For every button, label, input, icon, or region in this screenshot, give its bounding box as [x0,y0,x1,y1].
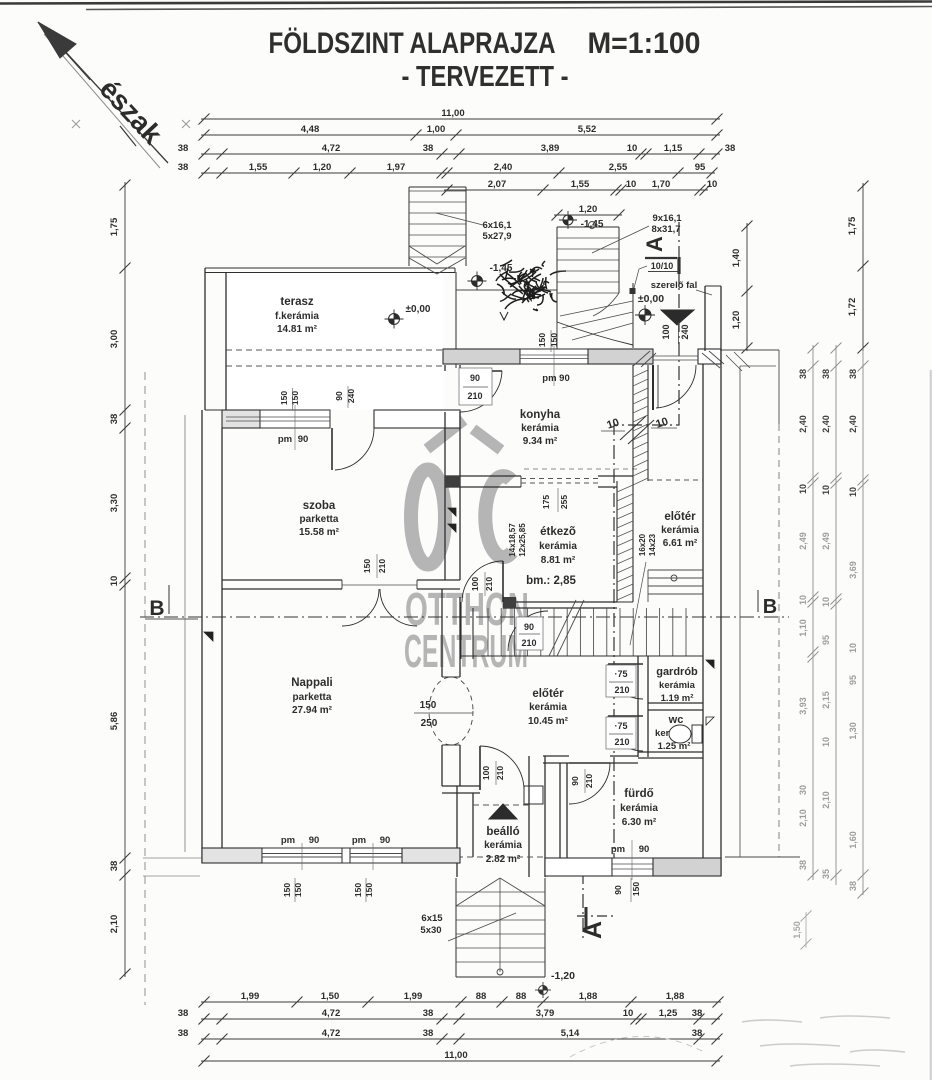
svg-text:A: A [642,236,667,252]
svg-text:parketta: parketta [293,692,332,703]
svg-text:parketta: parketta [300,514,339,525]
svg-text:1,88: 1,88 [666,991,685,1002]
svg-text:6.61 m²: 6.61 m² [663,538,698,549]
svg-text:-1,20: -1,20 [551,970,575,982]
svg-text:150: 150 [279,391,289,405]
svg-text:M=1:100: M=1:100 [588,27,701,60]
svg-text:B: B [763,596,777,618]
svg-text:2,07: 2,07 [488,179,507,190]
svg-text:10: 10 [627,143,638,154]
svg-text:3,93: 3,93 [798,697,808,715]
svg-text:1,97: 1,97 [387,162,406,173]
svg-text:10: 10 [848,487,858,497]
svg-text:11,00: 11,00 [444,1050,467,1061]
svg-text:±0,00: ±0,00 [638,293,664,305]
svg-text:4,72: 4,72 [322,143,341,154]
svg-text:240: 240 [346,389,356,403]
svg-text:210: 210 [467,391,482,401]
svg-text:95: 95 [821,635,831,645]
svg-text:5x30: 5x30 [420,925,441,936]
svg-text:150: 150 [631,882,641,896]
svg-text:10: 10 [821,485,831,495]
svg-text:2,40: 2,40 [848,415,858,433]
svg-text:150: 150 [364,883,374,897]
svg-text:kerámia: kerámia [484,840,522,851]
svg-text:14x23: 14x23 [648,533,657,556]
svg-text:5,14: 5,14 [561,1028,580,1039]
svg-text:15.58 m²: 15.58 m² [299,527,340,538]
svg-text:10/10: 10/10 [651,261,674,271]
svg-text:1,55: 1,55 [571,179,590,190]
svg-text:gardrób: gardrób [656,666,698,678]
svg-text:pm 90: pm 90 [542,373,569,384]
svg-text:2,49: 2,49 [821,532,831,550]
svg-text:4,72: 4,72 [322,1008,341,1019]
svg-text:étkezõ: étkezõ [540,526,576,538]
svg-text:2,49: 2,49 [798,532,808,550]
svg-text:38: 38 [848,369,858,379]
svg-text:kerámia: kerámia [529,702,567,713]
svg-text:90: 90 [613,885,623,895]
svg-text:konyha: konyha [520,409,561,421]
svg-text:wc: wc [668,714,684,726]
svg-text:1,25: 1,25 [659,1008,678,1019]
svg-text:pm: pm [611,844,625,855]
svg-text:3,30: 3,30 [109,494,120,513]
svg-text:100: 100 [661,324,671,339]
svg-text:8x31,7: 8x31,7 [651,224,680,235]
svg-text:1,72: 1,72 [847,298,858,317]
svg-text:10.45 m²: 10.45 m² [528,716,569,727]
svg-text:1,88: 1,88 [579,991,598,1002]
svg-text:90: 90 [524,622,534,632]
svg-text:14x18,57: 14x18,57 [508,523,517,557]
svg-text:4,72: 4,72 [322,1028,341,1039]
svg-text:38: 38 [798,860,808,870]
svg-text:10: 10 [848,643,858,653]
svg-text:38: 38 [178,143,189,154]
svg-text:1,40: 1,40 [731,249,742,268]
svg-text:90: 90 [309,835,320,846]
svg-text:9.34 m²: 9.34 m² [523,436,558,447]
svg-text:f.kerámia: f.kerámia [275,311,319,322]
svg-text:előtér: előtér [532,688,564,700]
svg-text:pm: pm [281,835,295,846]
svg-text:38: 38 [178,1028,189,1039]
svg-text:1,15: 1,15 [664,143,683,154]
svg-text:38: 38 [423,143,434,154]
svg-text:210: 210 [521,638,536,648]
svg-text:14.81 m²: 14.81 m² [277,324,318,335]
svg-text:8.81 m²: 8.81 m² [541,555,576,566]
svg-text:210: 210 [614,685,629,695]
svg-text:kerámia: kerámia [539,541,577,552]
svg-text:38: 38 [178,1008,189,1019]
svg-text:1,00: 1,00 [427,124,446,135]
svg-text:2.82 m²: 2.82 m² [486,854,521,865]
svg-text:6.30 m²: 6.30 m² [622,817,657,828]
svg-text:2,10: 2,10 [821,791,831,809]
svg-text:FÖLDSZINT ALAPRAJZA: FÖLDSZINT ALAPRAJZA [269,27,556,60]
svg-text:-1,45: -1,45 [581,219,604,230]
svg-text:90: 90 [470,373,480,383]
svg-text:38: 38 [109,861,120,872]
svg-text:10: 10 [821,597,831,607]
svg-text:kerámia: kerámia [620,803,658,814]
svg-text:150: 150 [353,883,363,897]
svg-text:10: 10 [109,576,120,587]
svg-text:beálló: beálló [486,826,519,838]
svg-text:150: 150 [420,700,437,711]
svg-text:150: 150 [282,883,292,897]
svg-text:2,10: 2,10 [109,915,120,934]
svg-text:1,60: 1,60 [848,831,858,849]
svg-text:A: A [579,921,607,939]
svg-text:90: 90 [334,391,344,401]
svg-text:255: 255 [559,495,569,509]
svg-text:5x27,9: 5x27,9 [482,231,511,242]
svg-text:88: 88 [516,991,527,1002]
svg-text:1,10: 1,10 [798,619,808,637]
svg-text:210: 210 [377,559,387,573]
svg-text:150: 150 [293,883,303,897]
svg-text:12x25,85: 12x25,85 [518,523,527,557]
svg-text:1,99: 1,99 [241,991,260,1002]
svg-text:38: 38 [423,1028,434,1039]
svg-text:150: 150 [549,333,559,347]
svg-text:10: 10 [626,179,637,190]
svg-text:10: 10 [798,595,808,605]
svg-text:·75: ·75 [614,721,627,731]
svg-text:38: 38 [821,369,831,379]
svg-text:90: 90 [380,835,391,846]
svg-text:- TERVEZETT -: - TERVEZETT - [402,61,569,93]
svg-text:1,20: 1,20 [731,311,742,330]
svg-text:4,48: 4,48 [301,124,320,135]
svg-text:210: 210 [484,577,494,591]
svg-text:100: 100 [481,766,491,780]
svg-text:38: 38 [178,162,189,173]
svg-text:2,15: 2,15 [821,691,831,709]
svg-text:210: 210 [614,737,629,747]
svg-text:88: 88 [476,991,487,1002]
svg-text:1,30: 1,30 [848,722,858,740]
svg-text:kerámia: kerámia [521,423,559,434]
svg-text:pm: pm [278,434,292,445]
svg-text:30: 30 [798,785,808,795]
svg-text:2,40: 2,40 [494,162,513,173]
svg-text:38: 38 [692,1028,703,1039]
svg-text:·75: ·75 [614,669,627,679]
svg-text:150: 150 [362,559,372,573]
svg-text:kerámia: kerámia [661,525,699,536]
svg-text:1,55: 1,55 [249,162,268,173]
svg-text:1,70: 1,70 [652,179,671,190]
svg-text:38: 38 [725,143,736,154]
svg-text:100: 100 [470,577,480,591]
svg-text:5,86: 5,86 [109,712,120,731]
svg-text:9x16,1: 9x16,1 [652,213,682,224]
svg-text:2,40: 2,40 [821,415,831,433]
svg-text:3,79: 3,79 [536,1008,555,1019]
svg-text:10: 10 [821,737,831,747]
svg-text:90: 90 [639,844,650,855]
svg-text:38: 38 [798,369,808,379]
svg-text:10: 10 [707,179,718,190]
svg-text:95: 95 [695,162,706,173]
svg-text:150: 150 [537,333,547,347]
svg-text:szerelő fal: szerelő fal [651,280,697,291]
svg-text:38: 38 [692,1008,703,1019]
svg-text:kerámia: kerámia [659,680,696,691]
svg-text:pm: pm [352,835,366,846]
svg-text:3,69: 3,69 [848,561,858,579]
svg-text:90: 90 [570,776,580,786]
svg-text:6x15: 6x15 [421,913,443,924]
svg-text:210: 210 [495,766,505,780]
svg-text:35: 35 [821,869,831,879]
svg-text:előtér: előtér [664,511,696,523]
svg-text:210: 210 [584,774,594,788]
svg-text:3,89: 3,89 [541,143,560,154]
svg-text:38: 38 [423,1008,434,1019]
svg-text:10: 10 [798,484,808,494]
svg-text:175: 175 [541,495,551,509]
svg-text:terasz: terasz [280,296,313,308]
svg-text:10: 10 [623,1008,634,1019]
svg-text:CENTRUM: CENTRUM [404,625,528,677]
svg-text:2,10: 2,10 [798,809,808,827]
svg-text:27.94 m²: 27.94 m² [292,705,333,716]
svg-text:1.25 m²: 1.25 m² [658,741,691,752]
svg-text:1,50: 1,50 [792,921,802,939]
svg-text:240: 240 [680,324,690,339]
svg-text:150: 150 [290,391,300,405]
svg-text:bm.: 2,85: bm.: 2,85 [526,575,576,587]
svg-text:95: 95 [848,675,858,685]
svg-text:16x20: 16x20 [638,533,647,556]
svg-text:1,20: 1,20 [579,204,598,215]
svg-text:Nappali: Nappali [291,677,333,689]
svg-text:5,52: 5,52 [578,124,597,135]
svg-text:1,50: 1,50 [321,991,340,1002]
svg-text:szoba: szoba [303,500,336,512]
svg-text:90: 90 [298,434,309,445]
svg-text:1,99: 1,99 [404,991,423,1002]
svg-text:1,75: 1,75 [847,216,858,235]
svg-text:11,00: 11,00 [441,108,464,119]
svg-text:1,20: 1,20 [313,162,332,173]
svg-text:fürdő: fürdő [624,788,653,800]
svg-text:250: 250 [421,718,438,729]
svg-text:38: 38 [109,414,120,425]
svg-text:1,75: 1,75 [109,217,120,236]
svg-text:±0,00: ±0,00 [406,304,431,315]
svg-text:2,40: 2,40 [798,415,808,433]
svg-text:6x16,1: 6x16,1 [482,220,512,231]
svg-text:3,00: 3,00 [109,330,120,349]
svg-text:B: B [149,597,164,620]
svg-text:38: 38 [848,881,858,891]
svg-text:1.19 m²: 1.19 m² [661,693,694,704]
svg-text:2,55: 2,55 [609,162,628,173]
